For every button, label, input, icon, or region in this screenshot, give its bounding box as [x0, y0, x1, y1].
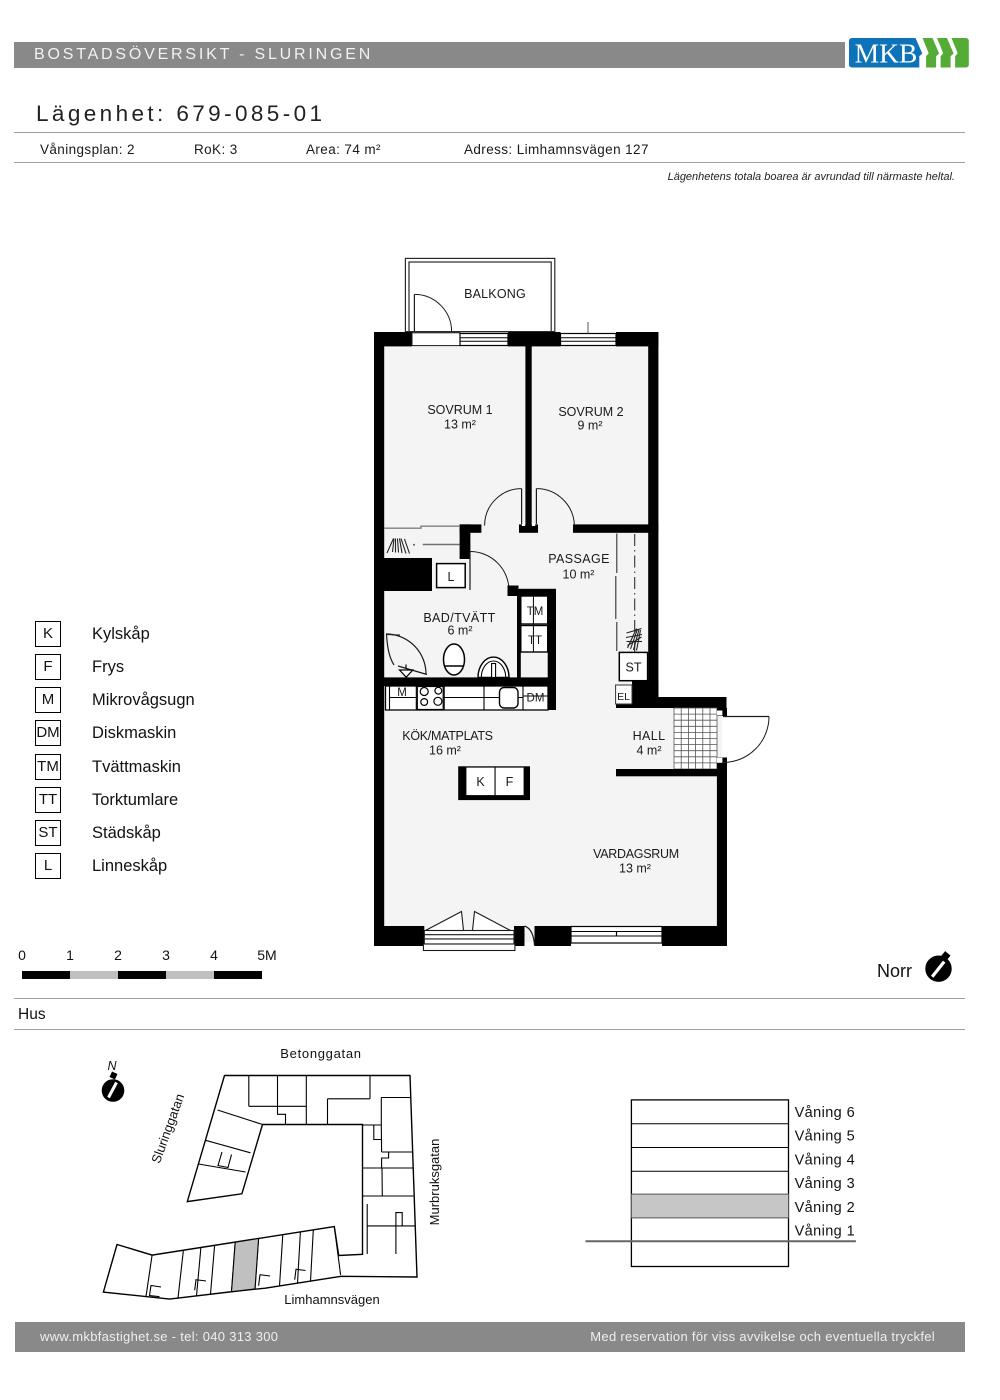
svg-text:ST: ST	[626, 661, 642, 675]
svg-text:Våning 5: Våning 5	[795, 1129, 855, 1145]
svg-text:13 m²: 13 m²	[619, 862, 651, 876]
svg-text:16 m²: 16 m²	[429, 744, 461, 758]
svg-text:N: N	[107, 1059, 117, 1073]
svg-text:Murbruksgatan: Murbruksgatan	[427, 1139, 442, 1226]
svg-text:9 m²: 9 m²	[578, 419, 603, 433]
svg-text:Våning 3: Våning 3	[795, 1176, 855, 1192]
svg-text:VARDAGSRUM: VARDAGSRUM	[593, 847, 679, 861]
svg-text:TM: TM	[527, 606, 544, 618]
svg-text:F: F	[506, 775, 514, 789]
svg-text:TT: TT	[528, 635, 542, 647]
svg-text:SOVRUM 1: SOVRUM 1	[427, 403, 492, 417]
svg-text:Våning 2: Våning 2	[795, 1200, 855, 1216]
svg-text:HALL: HALL	[633, 729, 666, 743]
svg-text:KÖK/MATPLATS: KÖK/MATPLATS	[402, 729, 492, 743]
svg-text:BALKONG: BALKONG	[464, 287, 526, 301]
svg-text:SOVRUM 2: SOVRUM 2	[558, 405, 623, 419]
svg-text:6 m²: 6 m²	[448, 624, 473, 638]
svg-text:4 m²: 4 m²	[637, 744, 662, 758]
svg-text:DM: DM	[527, 693, 545, 705]
svg-text:Limhamnsvägen: Limhamnsvägen	[284, 1292, 379, 1307]
svg-text:Våning 6: Våning 6	[795, 1105, 855, 1121]
svg-text:Våning 4: Våning 4	[795, 1152, 855, 1168]
svg-text:Betonggatan: Betonggatan	[280, 1046, 361, 1061]
svg-text:MKB: MKB	[855, 37, 918, 68]
svg-text:M: M	[397, 687, 407, 699]
svg-text:K: K	[476, 775, 485, 789]
svg-text:L: L	[448, 570, 455, 584]
svg-text:Våning 1: Våning 1	[795, 1223, 855, 1239]
svg-text:Sluringgatan: Sluringgatan	[148, 1092, 187, 1166]
svg-text:10 m²: 10 m²	[563, 568, 595, 582]
svg-text:EL: EL	[617, 691, 630, 703]
svg-text:13 m²: 13 m²	[444, 418, 476, 432]
svg-text:PASSAGE: PASSAGE	[548, 552, 610, 566]
